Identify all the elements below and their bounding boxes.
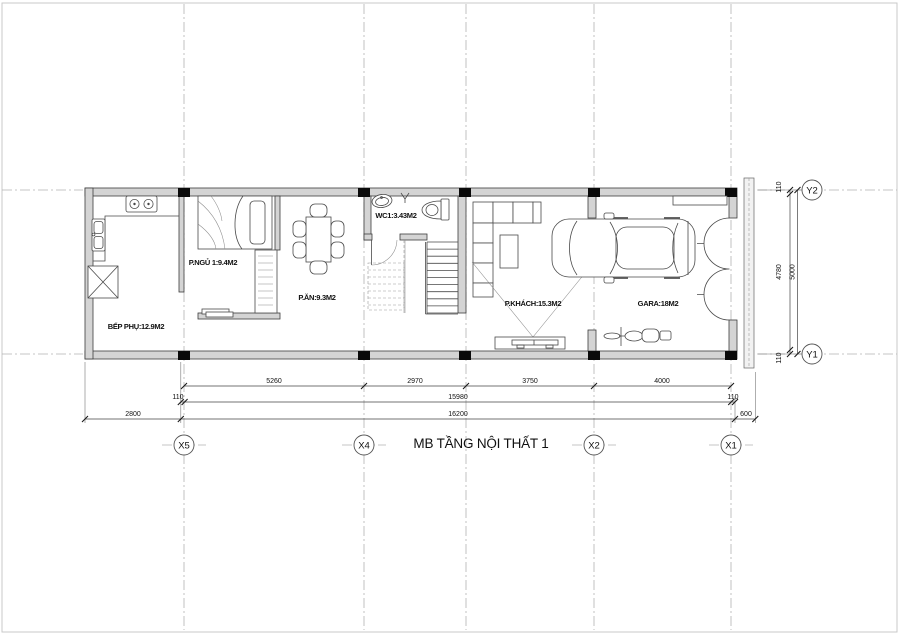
dim-v-offset-top: 110 — [776, 181, 783, 192]
kitchen-fixtures — [88, 196, 179, 298]
sheet-border — [2, 3, 897, 632]
chair — [293, 221, 306, 237]
drawing-title: MB TẦNG NỘI THẤT 1 — [413, 436, 548, 451]
toilet — [422, 199, 449, 220]
dim-seg3: 3750 — [522, 378, 538, 385]
chair — [310, 261, 327, 274]
staircase — [368, 240, 458, 314]
stair-treads — [427, 242, 458, 313]
axis-label-x1: X1 — [725, 441, 737, 452]
dim-v-span: 4780 — [776, 264, 783, 280]
wall-kitchen-bedroom — [179, 196, 184, 292]
dim-seg1: 5260 — [266, 378, 282, 385]
living-garage-pier-top — [588, 196, 596, 218]
column — [358, 188, 370, 197]
stair-stringer — [426, 242, 459, 314]
wardrobe — [255, 250, 277, 313]
chair — [293, 242, 306, 258]
grid-lines — [2, 4, 897, 630]
garage-right-pier-top — [729, 196, 737, 218]
column — [178, 351, 190, 360]
car-mirror — [604, 213, 614, 219]
bedroom-label: P.NGỦ 1:9.4M2 — [189, 258, 238, 267]
wall-bedroom-dining — [275, 196, 280, 250]
dimensions-right: 110 4780 110 5000 — [758, 181, 802, 363]
wc-door — [372, 240, 398, 265]
kitchen-counter — [93, 216, 179, 261]
column — [588, 188, 600, 197]
car-mirror — [604, 277, 614, 283]
dining-label: P.ĂN:9.3M2 — [298, 293, 335, 302]
axis-label-x5: X5 — [178, 441, 190, 452]
column — [459, 351, 471, 360]
wall-wc-bottom-left — [364, 234, 372, 240]
dim-offset-left: 110 — [172, 394, 183, 401]
kitchen-sink — [92, 219, 105, 251]
kitchen-label: BẾP PHỤ:12.9M2 — [108, 321, 165, 331]
garage-contents — [552, 178, 754, 368]
dim-left-ext: 2800 — [125, 411, 141, 418]
dim-v-total: 5000 — [790, 264, 797, 280]
garage-right-pier-bottom — [729, 320, 737, 351]
column — [725, 351, 737, 360]
storage-cabinet — [88, 266, 118, 298]
dim-seg2: 2970 — [407, 378, 423, 385]
axis-label-y2: Y2 — [806, 186, 818, 197]
dim-span: 15980 — [448, 394, 468, 401]
dim-v-offset-bottom: 110 — [776, 352, 783, 363]
floor-plan-sheet: BẾP PHỤ:12.9M2 P.NGỦ 1:9.4M2 P.ĂN:9.3M2 … — [0, 0, 900, 637]
living-garage-pier-bottom — [588, 330, 596, 351]
chair — [331, 242, 344, 258]
dim-seg4: 4000 — [654, 378, 670, 385]
garage-shelf — [673, 196, 727, 205]
tv-cabinet — [495, 337, 565, 349]
dining-set — [293, 204, 344, 274]
dining-table — [306, 217, 331, 262]
stair-dashed-flight — [368, 240, 404, 313]
living-label: P.KHÁCH:15.3M2 — [505, 299, 562, 308]
wall-stair-living — [458, 196, 466, 313]
folding-garage-door — [697, 218, 730, 320]
dimensions-bottom: 5260 2970 3750 4000 110 15980 110 2800 1… — [82, 362, 758, 423]
dim-total: 16200 — [448, 411, 468, 418]
axis-label-x2: X2 — [588, 441, 600, 452]
column — [178, 188, 190, 197]
motorbike — [604, 327, 671, 346]
floor-plan-drawing: BẾP PHỤ:12.9M2 P.NGỦ 1:9.4M2 P.ĂN:9.3M2 … — [0, 0, 900, 637]
bed — [198, 196, 272, 249]
axis-label-x4: X4 — [358, 441, 370, 452]
bedroom-furniture — [198, 196, 277, 317]
chair — [310, 204, 327, 217]
dresser — [202, 309, 233, 317]
dim-offset-right: 110 — [727, 394, 738, 401]
wall-wc-bottom-right — [400, 234, 427, 240]
axis-label-y1: Y1 — [806, 350, 818, 361]
wc-label: WC1:3.43M2 — [375, 211, 416, 220]
column — [459, 188, 471, 197]
column — [588, 351, 600, 360]
stove — [126, 196, 157, 212]
wall-wc-left — [364, 196, 371, 240]
chair — [331, 221, 344, 237]
column — [358, 351, 370, 360]
coffee-table — [500, 235, 518, 268]
dim-right-ext: 600 — [740, 411, 752, 418]
car — [552, 213, 695, 283]
front-gate-strip — [744, 178, 754, 368]
garage-label: GARA:18M2 — [638, 299, 679, 308]
